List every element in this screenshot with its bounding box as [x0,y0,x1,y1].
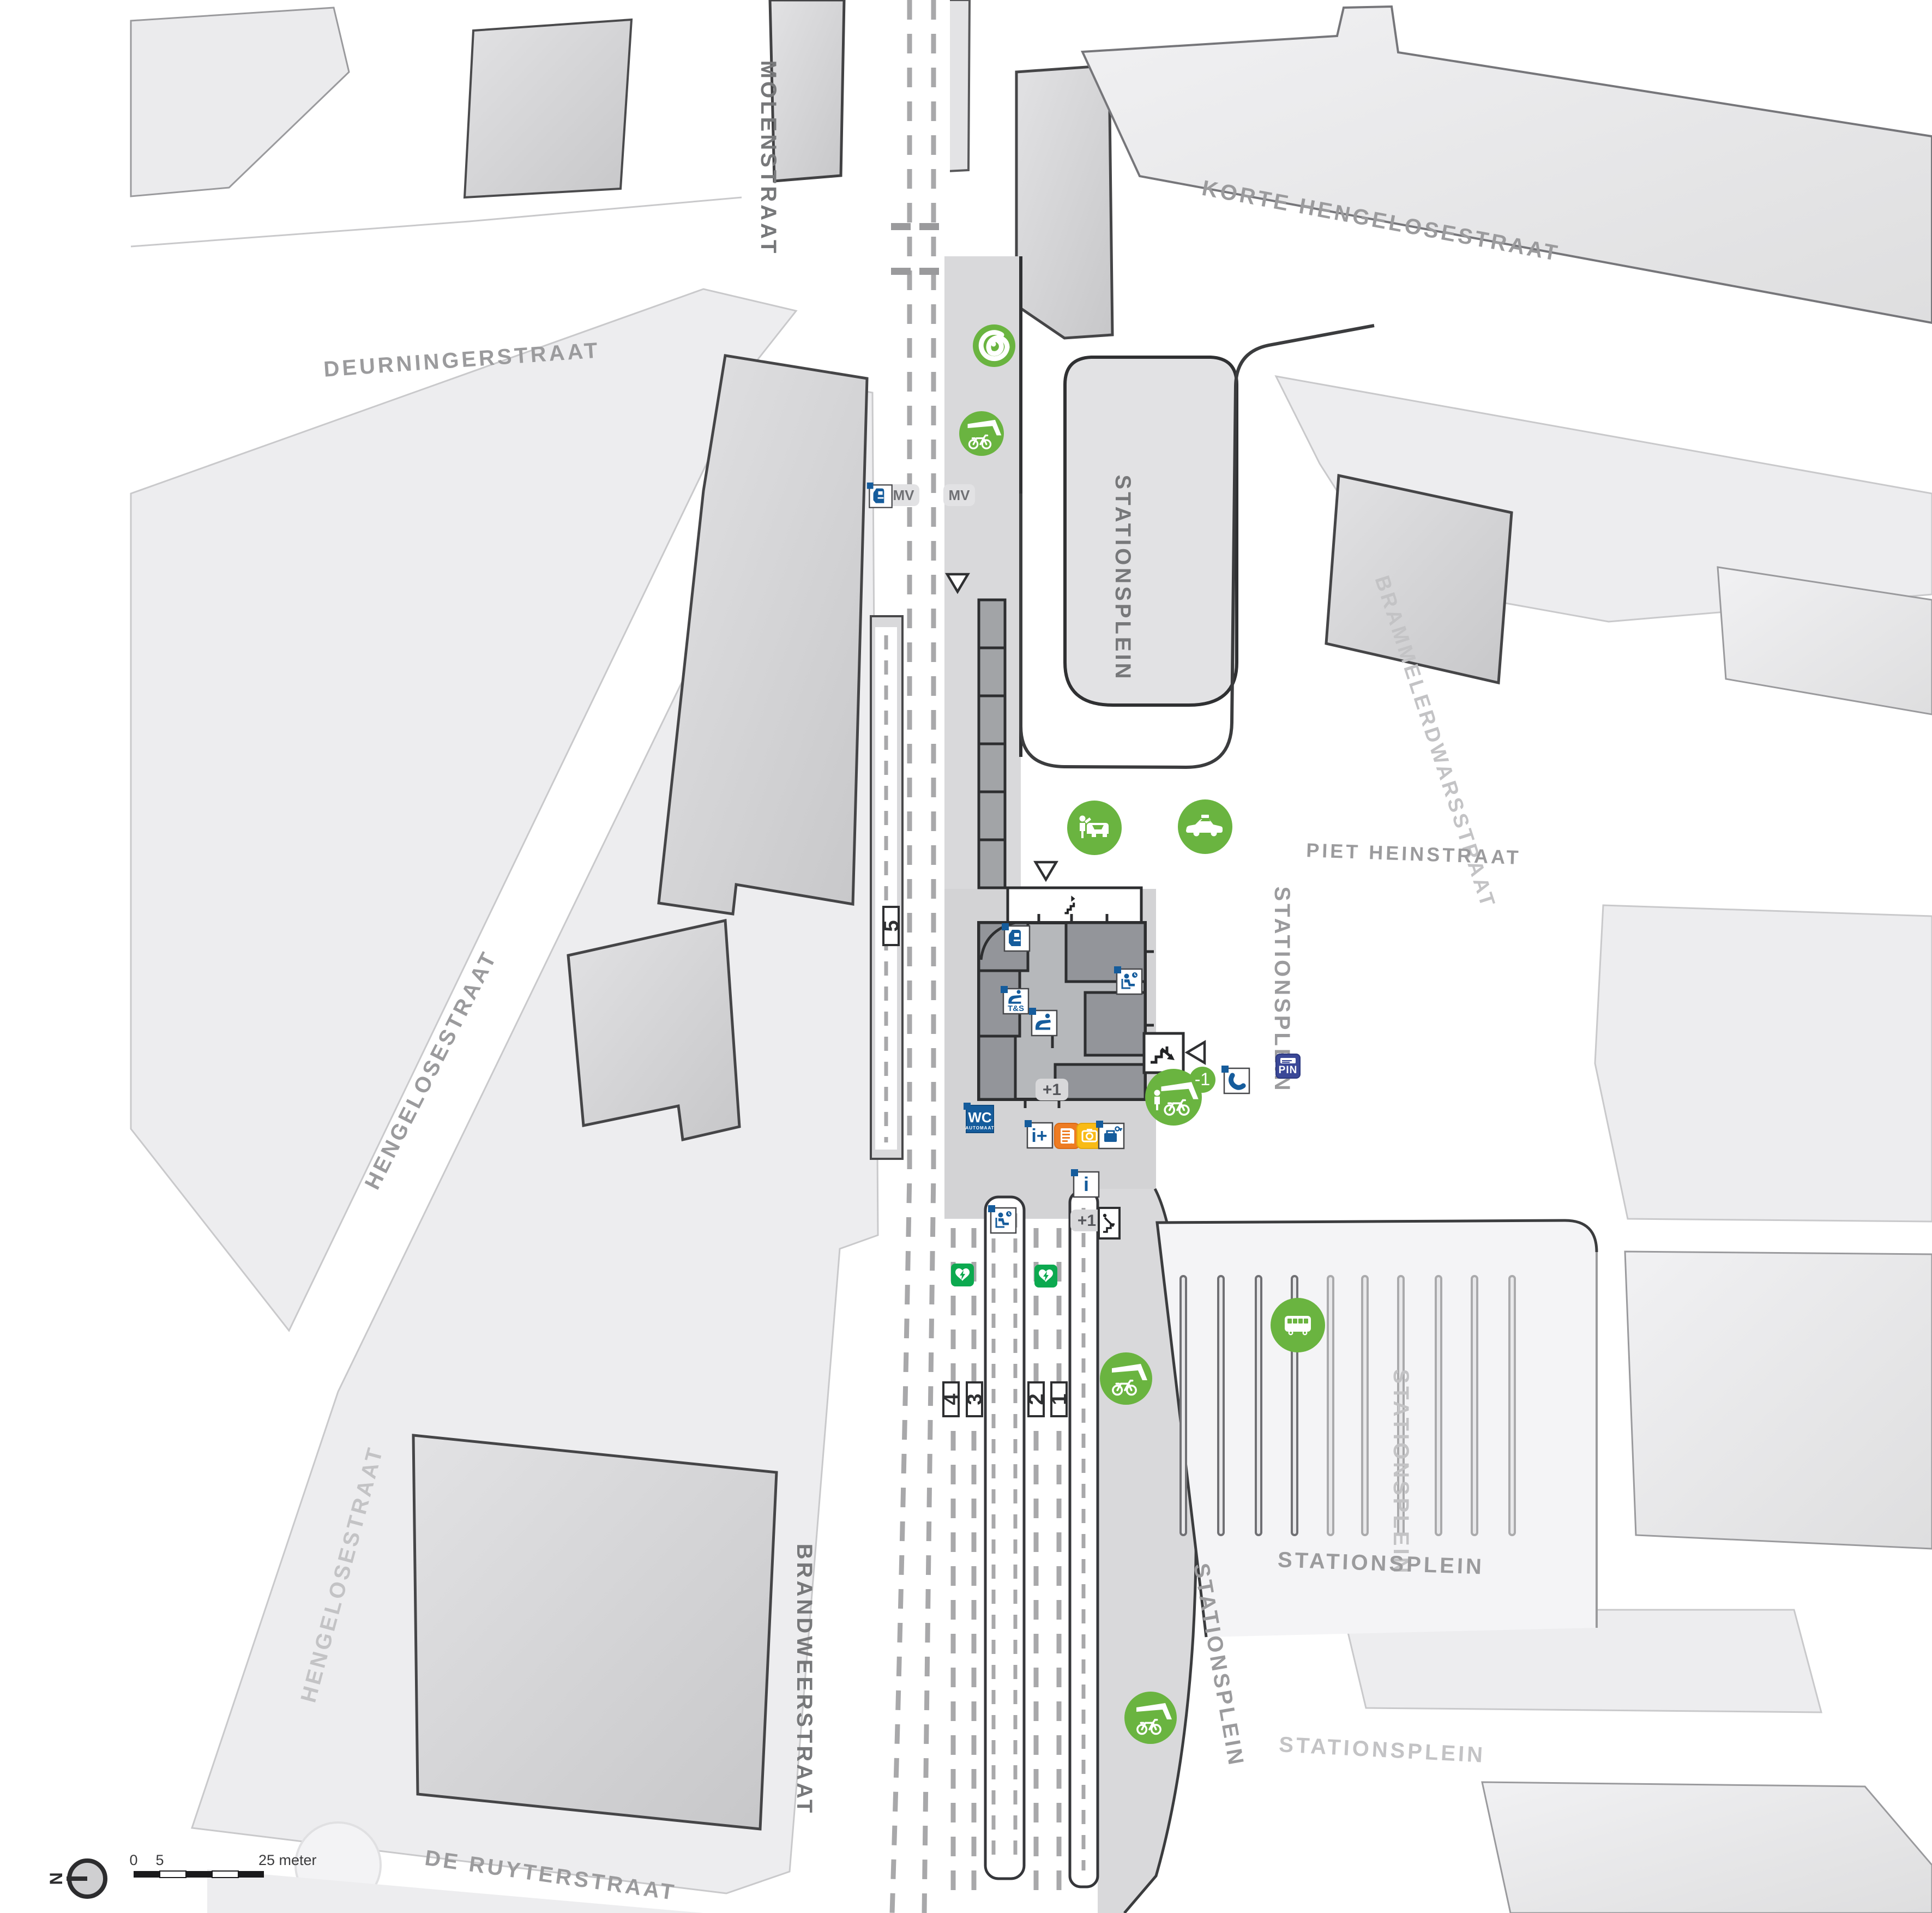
info-label: i [1084,1173,1089,1195]
scale-five: 5 [155,1852,164,1868]
north-arrow: N [46,1861,105,1897]
entrance-arrow-icon [1036,862,1056,880]
service-desk-icon [1029,1008,1057,1036]
bus-berth [1436,1276,1441,1535]
covered-bike-parking-icon [1100,1352,1152,1405]
aed-icon [951,1264,974,1286]
platform-2-label: 2 [1025,1393,1048,1405]
tickets-and-service-label: T&S [1008,1004,1024,1013]
building [413,1435,777,1829]
level-plus1-platform: +1 [1078,1212,1096,1230]
bus-berth [1181,1276,1186,1535]
waiting-room-icon [1114,966,1142,994]
scale-bar: 0 5 25 meter [129,1852,316,1878]
block [1625,1252,1932,1549]
platform-3-label: 3 [964,1393,986,1405]
entrance-arrow-icon [1187,1042,1205,1063]
street-label-stationsplein-se-bottom: STATIONSPLEIN [1278,1732,1486,1767]
block [1082,7,1932,323]
platform-island-3-4 [985,1197,1024,1879]
street-label-stationsplein-loop: STATIONSPLEIN [1111,474,1135,681]
bus-station-icon [1271,1298,1325,1352]
atm-label: PIN [1279,1064,1298,1076]
bus-berth [1218,1276,1224,1535]
scale-zero: 0 [129,1852,137,1868]
building [1326,476,1512,683]
level-minus1-label: -1 [1195,1069,1210,1089]
street-label-molenstraat: MOLENSTRAAT [756,61,780,256]
block [1482,1782,1932,1913]
toilet-icon: WC AUTOMAAT [964,1103,995,1133]
covered-bike-parking-icon [1124,1692,1177,1744]
street-label-piet-heinstraat: PIET HEINSTRAAT [1306,839,1522,869]
building [465,20,631,197]
block [131,8,349,196]
taxi-stand-icon [1178,799,1232,854]
building [1016,65,1112,338]
greenwheels-icon [973,324,1015,367]
bus-berth [1328,1276,1333,1535]
info-plus-label: i+ [1031,1126,1047,1146]
block [1595,905,1932,1222]
luggage-lockers-icon [1096,1121,1124,1148]
street-label-brandweerstraat: BRANDWEERSTRAAT [792,1544,816,1816]
ticket-machine-icon [1002,923,1030,951]
building [947,0,970,171]
bus-berth [1509,1276,1515,1535]
level-plus1-station: +1 [1043,1081,1061,1099]
bus-berth [1256,1276,1261,1535]
bus-berth [1362,1276,1368,1535]
stairs-exit-icon [1144,1033,1183,1073]
street-label-stationsplein-bus: STATIONSPLEIN [1389,1369,1413,1575]
building [770,0,844,181]
mv-right-label: MV [949,487,971,503]
mv-left-label: MV [893,487,915,503]
platform-1-label: 1 [1048,1393,1071,1405]
atm-icon: PIN [1276,1054,1300,1078]
info-point-icon: i [1071,1169,1099,1197]
toilet-sub-label: AUTOMAAT [965,1126,994,1130]
ticket-machine-icon [867,483,892,508]
guarded-bike-parking-icon: -1 [1145,1067,1215,1126]
info-desk-icon: i+ [1025,1120,1052,1148]
kiss-and-ride-icon [1067,801,1122,855]
tickets-and-service-icon: T&S [1001,986,1028,1014]
north-label: N [46,1872,66,1885]
waiting-room-icon [988,1205,1016,1233]
toilet-label: WC [968,1109,992,1126]
loop-island [1065,357,1237,705]
station-area-map: MOLENSTRAAT KORTE HENGELOSESTRAAT DEURNI… [0,0,1932,1913]
platform-4-label: 4 [940,1393,963,1405]
phone-icon [1221,1066,1249,1093]
aed-icon [1034,1265,1057,1288]
bus-berth [1472,1276,1477,1535]
building [568,921,739,1140]
platform-5-label: 5 [880,920,903,931]
scale-max: 25 meter [258,1852,317,1868]
escalator-icon [1099,1208,1120,1238]
kiosk-icon [1055,1123,1080,1148]
covered-bike-parking-icon [959,411,1004,456]
